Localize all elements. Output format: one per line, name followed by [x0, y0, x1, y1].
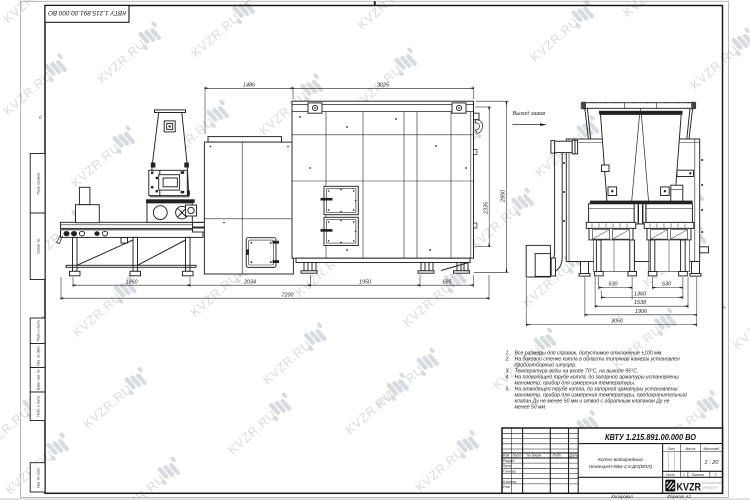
- svg-text:Утв.: Утв.: [503, 485, 511, 489]
- svg-text:Перв. примен.: Перв. примен.: [37, 172, 41, 195]
- svg-text:Выход газов: Выход газов: [513, 111, 546, 117]
- svg-text:манометр, прибор для измерения: манометр, прибор для измерения температу…: [515, 392, 687, 399]
- svg-text:4.: 4.: [506, 375, 510, 381]
- svg-text:Листов: Листов: [691, 473, 705, 477]
- svg-text:1: 1: [683, 473, 685, 477]
- svg-text:Котел водогрейный: Котел водогрейный: [598, 456, 643, 462]
- svg-text:2034: 2034: [243, 279, 256, 285]
- svg-text:1 : 20: 1 : 20: [704, 460, 719, 466]
- svg-text:3025: 3025: [377, 82, 390, 88]
- svg-text:№ докум.: № докум.: [527, 454, 542, 458]
- svg-text:КОТЕЛЬНЫЙ: КОТЕЛЬНЫЙ: [703, 481, 722, 485]
- svg-text:КВТУ 1.215.891.00.000 ВО: КВТУ 1.215.891.00.000 ВО: [48, 9, 126, 16]
- svg-text:630: 630: [662, 282, 671, 288]
- svg-text:На боковой стенке котла в обла: На боковой стенке котла в области топочн…: [515, 356, 680, 363]
- svg-text:А: А: [42, 315, 45, 320]
- svg-text:7200: 7200: [282, 292, 294, 298]
- svg-text:Инв. № подл.: Инв. № подл.: [37, 467, 41, 488]
- svg-text:1486: 1486: [243, 82, 255, 88]
- svg-text:Лист: Лист: [665, 473, 675, 477]
- svg-text:1950: 1950: [359, 279, 371, 285]
- svg-text:Дата: Дата: [568, 454, 578, 458]
- svg-text:Инв. № дубл.: Инв. № дубл.: [37, 345, 41, 366]
- svg-text:Подп. и дата: Подп. и дата: [37, 320, 41, 341]
- svg-text:Копировал: Копировал: [611, 494, 633, 499]
- svg-text:Разраб.: Разраб.: [503, 459, 515, 463]
- svg-text:ЗАВОД.РУ: ЗАВОД.РУ: [703, 486, 718, 490]
- svg-text:Пров.: Пров.: [503, 464, 512, 468]
- svg-text:1538: 1538: [634, 300, 646, 306]
- svg-text:630: 630: [609, 282, 618, 288]
- svg-text:685: 685: [443, 279, 453, 285]
- svg-text:3050: 3050: [611, 319, 623, 325]
- svg-text:1960: 1960: [126, 279, 138, 285]
- svg-text:3: 3: [715, 473, 717, 477]
- svg-text:пробоотборный штуцер.: пробоотборный штуцер.: [515, 362, 577, 369]
- svg-text:На подводящей трубе котла, до: На подводящей трубе котла, до запорной а…: [515, 374, 680, 381]
- svg-text:Изм.: Изм.: [503, 454, 510, 458]
- svg-text:Масштаб: Масштаб: [703, 447, 719, 451]
- svg-text:На отводящей трубе котла, до з: На отводящей трубе котла, до запорной ар…: [515, 386, 680, 393]
- svg-text:Лит.: Лит.: [667, 447, 676, 451]
- svg-text:2.: 2.: [505, 357, 510, 363]
- svg-text:Т.контр.: Т.контр.: [503, 469, 517, 473]
- svg-text:Heatexpert-КВм-2,5-ДО(ВПЛ): Heatexpert-КВм-2,5-ДО(ВПЛ): [589, 464, 652, 469]
- svg-text:Подп. и дата: Подп. и дата: [37, 396, 41, 417]
- svg-text:5.: 5.: [506, 387, 510, 393]
- svg-text:Взам. инв. №: Взам. инв. №: [37, 369, 41, 390]
- svg-text:менее 50 мм.: менее 50 мм.: [515, 405, 547, 411]
- svg-text:2950: 2950: [501, 190, 507, 203]
- svg-text:2335: 2335: [483, 201, 489, 215]
- svg-text:Лист: Лист: [511, 454, 521, 458]
- svg-text:1906: 1906: [635, 309, 647, 315]
- svg-text:КВТУ 1.215.891.00.000 ВО: КВТУ 1.215.891.00.000 ВО: [605, 432, 696, 442]
- svg-text:А: А: [723, 305, 726, 310]
- svg-text:KVZR: KVZR: [677, 482, 702, 494]
- svg-text:Подп.: Подп.: [553, 454, 562, 458]
- svg-text:Масса: Масса: [685, 447, 695, 451]
- svg-text:Справ. №: Справ. №: [37, 238, 41, 254]
- svg-text:Н.контр.: Н.контр.: [503, 480, 517, 484]
- svg-text:Формат А2: Формат А2: [667, 494, 691, 499]
- svg-text:1360: 1360: [634, 291, 646, 297]
